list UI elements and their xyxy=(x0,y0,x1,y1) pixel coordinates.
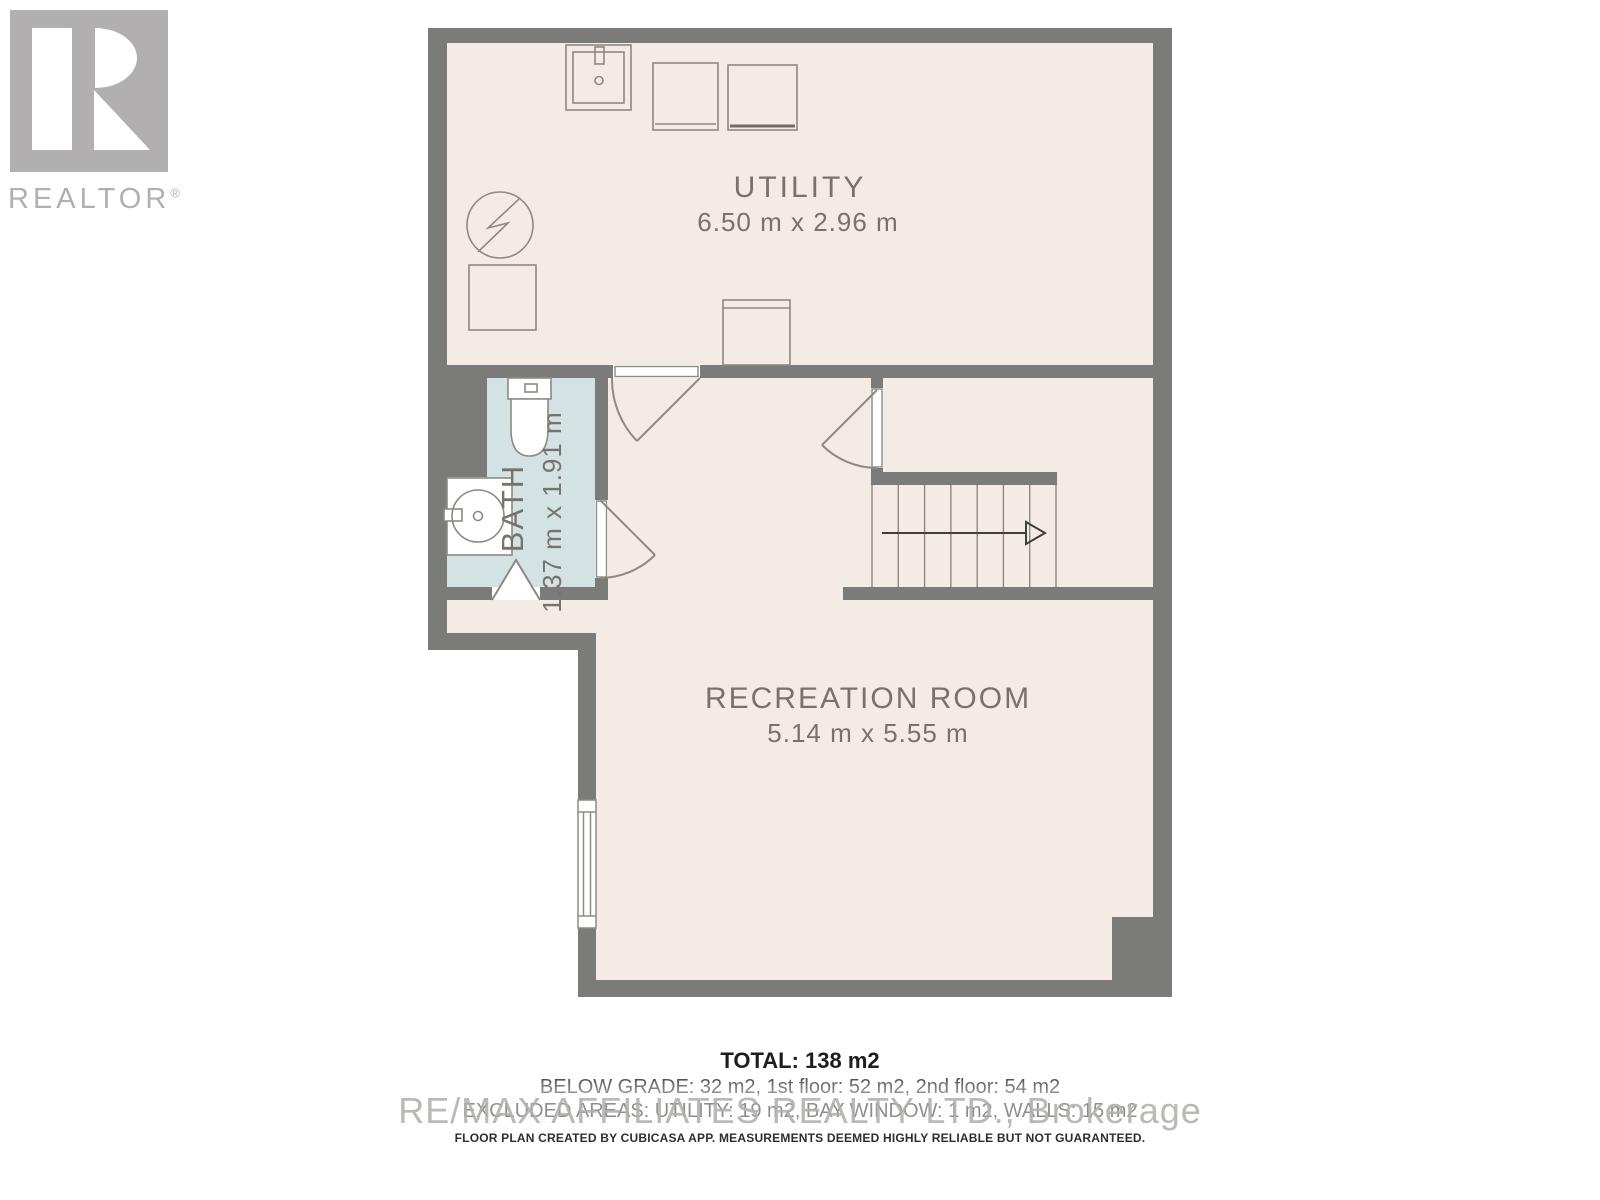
wall-stair-top xyxy=(871,472,1057,485)
utility-room-label: UTILITY xyxy=(734,171,867,204)
bath-hall-door-leaf xyxy=(597,501,607,577)
floor-plan: UTILITY 6.50 m x 2.96 m BATH 1.37 m x 1.… xyxy=(0,0,1600,1200)
window-frame xyxy=(578,800,596,928)
bath-room-dimensions: 1.37 m x 1.91 m xyxy=(537,411,567,612)
utility-door-leaf xyxy=(615,367,698,377)
recreation-floor xyxy=(596,587,1153,980)
window-icon xyxy=(578,800,596,928)
area-summary: TOTAL: 138 m2 BELOW GRADE: 32 m2, 1st fl… xyxy=(0,1048,1600,1123)
disclaimer-text: FLOOR PLAN CREATED BY CUBICASA APP. MEAS… xyxy=(0,1131,1600,1145)
wall-stair-bottom xyxy=(843,587,1172,600)
recreation-room-dimensions: 5.14 m x 5.55 m xyxy=(767,718,968,748)
wall-corner-notch xyxy=(1112,917,1172,997)
stair-door-leaf xyxy=(872,389,882,467)
alcove-floor xyxy=(447,600,596,633)
excluded-areas-line: EXCLUDED AREAS: UTILITY: 19 m2, BAY WIND… xyxy=(0,1100,1600,1123)
total-area-line: TOTAL: 138 m2 xyxy=(0,1048,1600,1074)
utility-room-dimensions: 6.50 m x 2.96 m xyxy=(697,207,898,237)
wall-utility-bottom xyxy=(428,365,1172,378)
utility-floor xyxy=(447,43,1153,365)
recreation-room-label: RECREATION ROOM xyxy=(705,682,1031,715)
bath-room-label: BATH xyxy=(495,464,530,552)
floor-areas-line: BELOW GRADE: 32 m2, 1st floor: 52 m2, 2n… xyxy=(0,1076,1600,1099)
wall-alcove-bottom xyxy=(428,633,596,650)
wall-right xyxy=(1153,28,1172,997)
wall-left xyxy=(428,28,447,650)
wall-bath-chase xyxy=(447,378,487,477)
wall-rec-bottom xyxy=(578,980,1172,997)
wall-top xyxy=(428,28,1172,43)
floor-plan-page: REALTOR® xyxy=(0,0,1600,1200)
